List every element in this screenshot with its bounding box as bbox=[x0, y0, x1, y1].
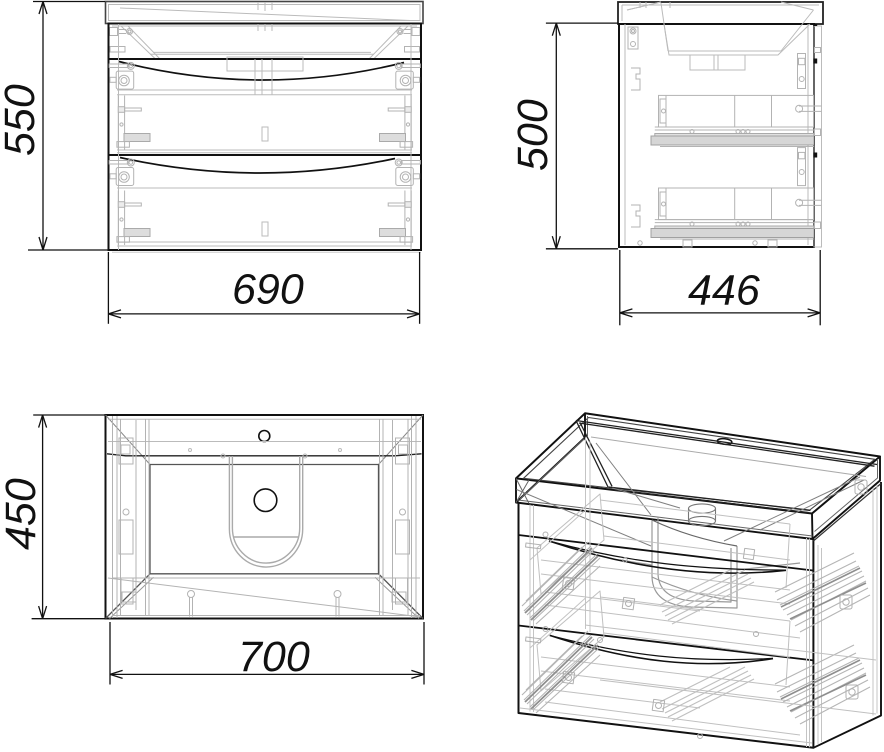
svg-text:700: 700 bbox=[238, 633, 310, 681]
svg-text:690: 690 bbox=[232, 266, 304, 314]
svg-text:450: 450 bbox=[0, 478, 45, 550]
svg-text:550: 550 bbox=[0, 84, 44, 156]
svg-text:500: 500 bbox=[509, 99, 557, 171]
svg-text:446: 446 bbox=[688, 267, 760, 315]
